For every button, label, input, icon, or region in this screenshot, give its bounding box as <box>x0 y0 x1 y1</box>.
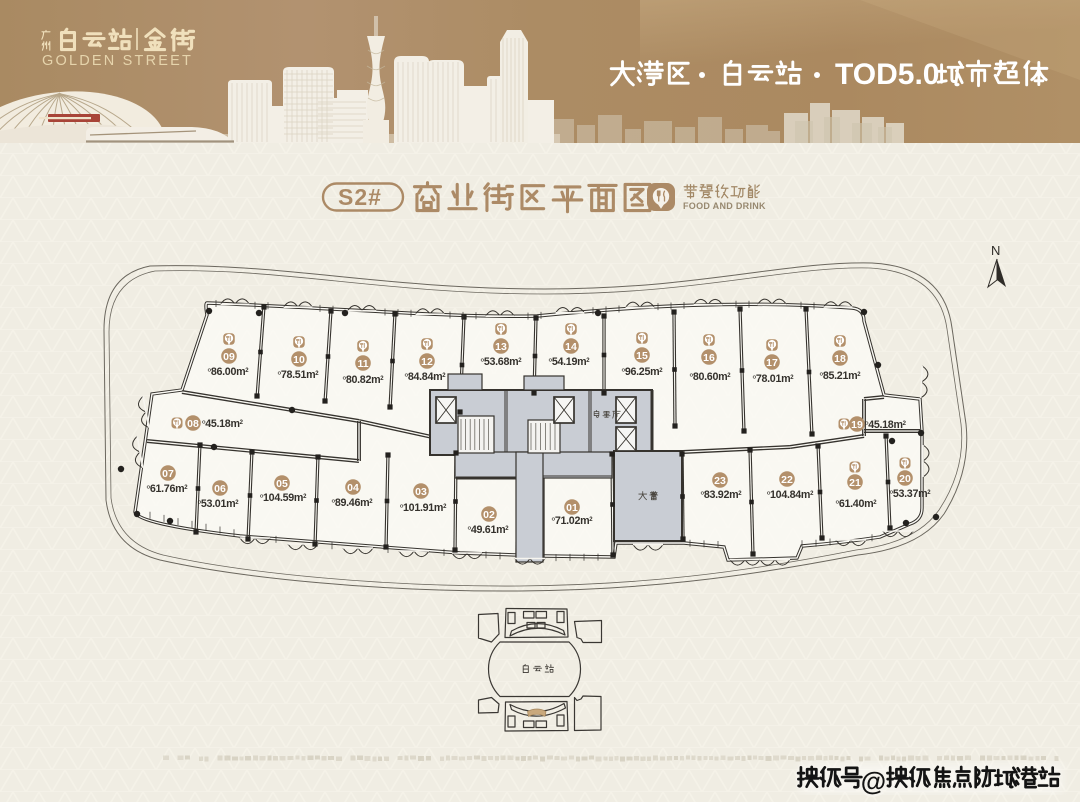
svg-text:O53.01m2: O53.01m2 <box>198 498 240 510</box>
svg-text:O89.46m2: O89.46m2 <box>332 497 374 509</box>
svg-text:03: 03 <box>415 486 427 498</box>
svg-text:O54.19m2: O54.19m2 <box>549 356 591 368</box>
svg-text:O61.40m2: O61.40m2 <box>836 498 878 510</box>
svg-text:20: 20 <box>899 473 911 485</box>
svg-text:18: 18 <box>834 353 846 365</box>
svg-text:11: 11 <box>357 358 368 370</box>
svg-text:04: 04 <box>347 482 359 494</box>
svg-text:N: N <box>991 243 1000 258</box>
svg-text:23: 23 <box>714 475 726 487</box>
svg-text:@: @ <box>861 766 886 796</box>
svg-text:13: 13 <box>495 341 507 353</box>
svg-text:O45.18m2: O45.18m2 <box>202 418 244 430</box>
svg-text:O101.91m2: O101.91m2 <box>400 502 447 514</box>
svg-text:O53.68m2: O53.68m2 <box>481 356 523 368</box>
svg-text:O104.84m2: O104.84m2 <box>767 489 814 501</box>
svg-text:O104.59m2: O104.59m2 <box>260 492 307 504</box>
svg-text:O86.00m2: O86.00m2 <box>208 366 250 378</box>
svg-text:O84.84m2: O84.84m2 <box>405 371 447 383</box>
svg-text:08: 08 <box>187 418 199 430</box>
svg-text:09: 09 <box>223 351 235 363</box>
svg-text:14: 14 <box>565 341 577 353</box>
svg-text:O83.92m2: O83.92m2 <box>701 489 743 501</box>
svg-text:O61.76m2: O61.76m2 <box>147 483 189 495</box>
svg-text:O96.25m2: O96.25m2 <box>622 366 664 378</box>
svg-text:05: 05 <box>276 478 288 490</box>
svg-text:15: 15 <box>636 350 648 362</box>
svg-text:O45.18m2: O45.18m2 <box>865 419 907 431</box>
svg-text:12: 12 <box>421 356 433 368</box>
svg-text:19: 19 <box>851 419 863 431</box>
svg-text:10: 10 <box>293 354 305 366</box>
svg-text:O49.61m2: O49.61m2 <box>468 524 510 536</box>
svg-text:O80.82m2: O80.82m2 <box>343 374 385 386</box>
svg-text:01: 01 <box>566 502 578 514</box>
svg-text:O53.37m2: O53.37m2 <box>890 488 932 500</box>
svg-text:O78.51m2: O78.51m2 <box>278 369 320 381</box>
svg-text:07: 07 <box>162 468 174 480</box>
svg-text:22: 22 <box>781 474 793 486</box>
svg-text:O85.21m2: O85.21m2 <box>820 370 862 382</box>
svg-text:17: 17 <box>766 357 778 369</box>
svg-text:16: 16 <box>703 352 715 364</box>
svg-text:06: 06 <box>214 483 226 495</box>
svg-text:O80.60m2: O80.60m2 <box>690 371 732 383</box>
svg-text:21: 21 <box>849 477 861 489</box>
svg-text:02: 02 <box>483 509 495 521</box>
svg-text:O78.01m2: O78.01m2 <box>753 373 795 385</box>
svg-text:O71.02m2: O71.02m2 <box>552 515 594 527</box>
